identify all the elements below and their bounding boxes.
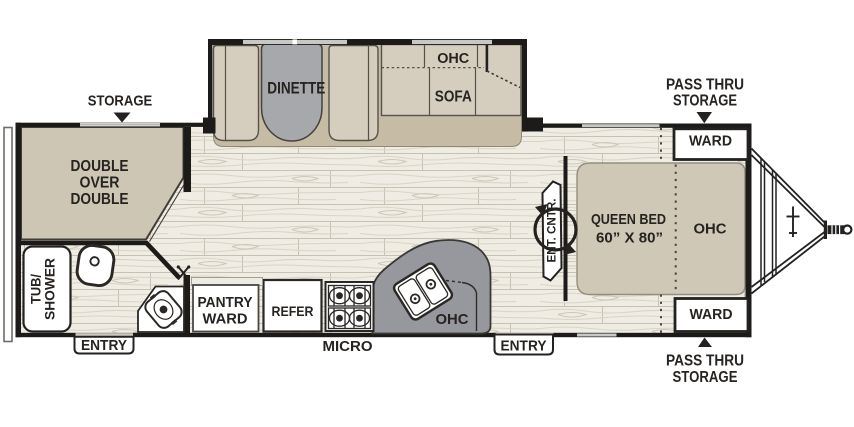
svg-text:OVER: OVER [80, 175, 120, 192]
svg-text:DOUBLE: DOUBLE [71, 191, 129, 208]
svg-text:DOUBLE: DOUBLE [71, 158, 129, 175]
svg-text:PASS THRU: PASS THRU [666, 76, 744, 93]
svg-text:OHC: OHC [694, 222, 728, 238]
svg-text:OHC: OHC [437, 51, 470, 67]
svg-text:ENTRY: ENTRY [501, 339, 547, 355]
svg-text:MICRO: MICRO [323, 339, 373, 355]
svg-text:STORAGE: STORAGE [88, 93, 153, 110]
svg-text:TUB/: TUB/ [29, 274, 44, 304]
svg-text:WARD: WARD [689, 134, 732, 150]
svg-text:DINETTE: DINETTE [267, 79, 325, 98]
svg-text:WARD: WARD [203, 312, 248, 328]
svg-text:WARD: WARD [690, 307, 733, 323]
svg-text:PANTRY: PANTRY [198, 295, 253, 311]
svg-text:REFER: REFER [272, 303, 314, 319]
svg-text:ENTRY: ENTRY [81, 338, 127, 354]
svg-text:STORAGE: STORAGE [673, 369, 738, 386]
svg-text:OHC: OHC [436, 311, 469, 328]
svg-text:SOFA: SOFA [435, 89, 472, 106]
svg-text:ENT. CNTR.: ENT. CNTR. [547, 199, 559, 263]
svg-text:QUEEN BED: QUEEN BED [591, 211, 666, 228]
svg-text:STORAGE: STORAGE [673, 93, 737, 110]
svg-text:PASS THRU: PASS THRU [666, 353, 744, 370]
svg-text:SHOWER: SHOWER [43, 258, 58, 320]
svg-text:60” X 80”: 60” X 80” [596, 230, 663, 247]
